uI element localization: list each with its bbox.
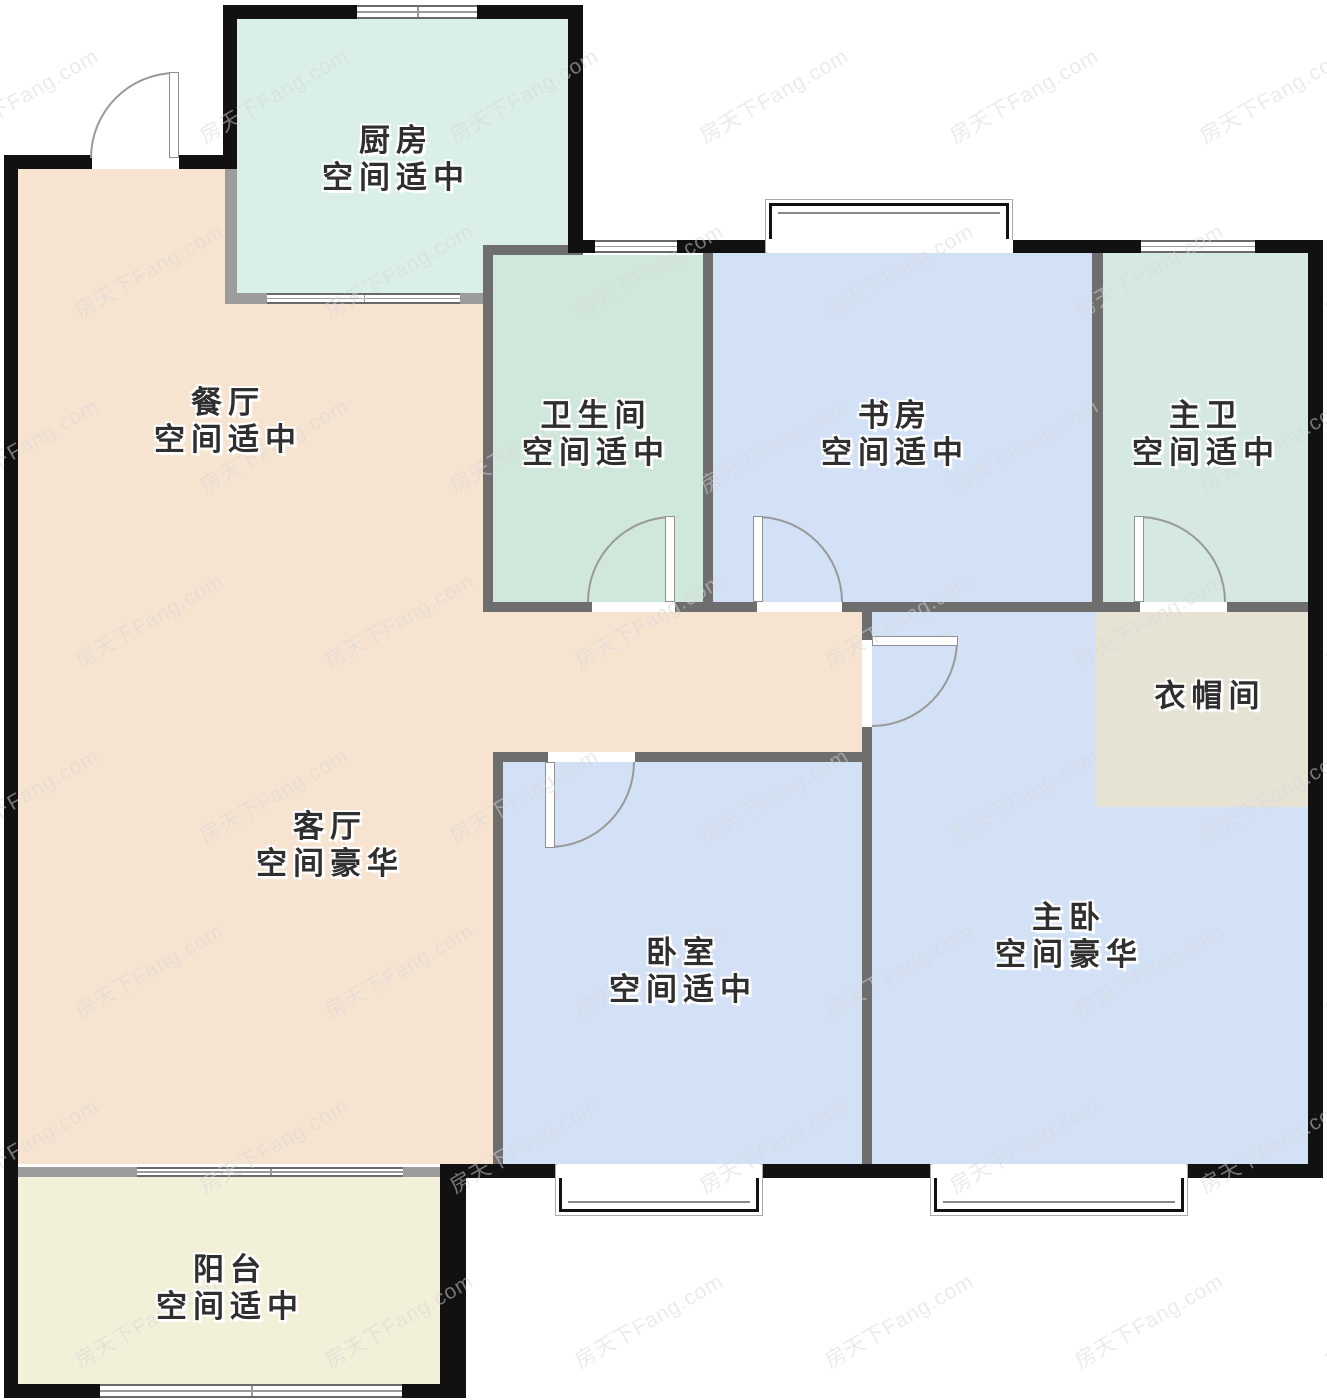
living-note: 空间豪华 [256,845,404,882]
floorplan-canvas: 房天下Fang.com房天下Fang.com房天下Fang.com房天下Fang… [0,0,1327,1400]
bedroom-left-wall [493,752,503,1164]
balcony-right-wall [440,1178,466,1398]
entry-door-arc [90,72,176,158]
master-bedroom-name: 主卧 [995,899,1143,936]
bathroom-name: 卫生间 [522,397,670,434]
living-name: 客厅 [256,808,404,845]
bedroom-bay-window-frame [559,1178,759,1212]
masterbath-top-window-glass-line [1141,246,1255,248]
masterbath-door-opening [1140,602,1227,612]
watermark-text: 房天下Fang.com [1194,40,1327,150]
master-bedroom-note: 空间豪华 [995,936,1143,973]
dining-note: 空间适中 [154,421,302,458]
bathroom-door-opening [592,602,675,612]
watermark-text: 房天下Fang.com [1319,1265,1327,1375]
watermark-text: 房天下Fang.com [694,40,854,150]
bedroom-label: 卧室空间适中 [609,934,757,1008]
bedroom-bay-window-glass-line [568,1201,750,1203]
study-door-opening [757,602,842,612]
bedroom-bay-window-opening [557,1164,761,1178]
master-bay-window-opening [932,1164,1186,1178]
study-name: 书房 [821,397,969,434]
kitchen-left-lower-wall [225,169,237,303]
kitchen-note: 空间适中 [322,159,470,196]
master-bay-window-glass-line [943,1201,1175,1203]
dining-floor [18,169,225,1164]
right-exterior-wall [1308,240,1323,1178]
kitchen-label: 厨房空间适中 [322,122,470,196]
living-label: 客厅空间豪华 [256,808,404,882]
balcony-note: 空间适中 [156,1288,304,1325]
left-exterior-wall [4,155,18,1398]
bedroom-name: 卧室 [609,934,757,971]
kitchen-top-window [357,5,477,19]
study-top-window [595,240,677,253]
master-bath-label: 主卫空间适中 [1132,397,1280,471]
masterbath-door-leaf [1134,516,1144,602]
study-door-leaf [753,516,763,602]
bathroom-door-leaf [665,516,675,602]
dining-floor [483,612,872,752]
bathroom-label: 卫生间空间适中 [522,397,670,471]
study-label: 书房空间适中 [821,397,969,471]
master-bath-note: 空间适中 [1132,434,1280,471]
master-bay-window-frame [934,1178,1184,1212]
kitchen-right-wall [568,5,583,253]
kitchen-bottom-window [267,293,460,304]
study-bay-window-opening [767,240,1013,253]
watermark-text: 房天下Fang.com [0,40,104,150]
study-bay-window-frame [769,203,1009,239]
watermark-text: 房天下Fang.com [569,1265,729,1375]
entry-wall-left [4,155,92,169]
balcony-bottom-window-divider [251,1386,253,1396]
bedroom-door-leaf [545,762,555,848]
entry-door-leaf [169,72,179,158]
balcony-name: 阳台 [156,1251,304,1288]
closet-label: 衣帽间 [1155,678,1266,715]
bathroom-note: 空间适中 [522,434,670,471]
bathroom-left-wall [483,245,493,602]
study-bay-window-glass-line [778,212,1000,214]
study-masterbath-wall [1092,253,1103,612]
master-bedroom-label: 主卧空间豪华 [995,899,1143,973]
master-bath-name: 主卫 [1132,397,1280,434]
study-top-window-glass-line [595,246,677,248]
kitchen-bottom-window-divider [364,295,366,302]
dining-label: 餐厅空间适中 [154,384,302,458]
dining-name: 餐厅 [154,384,302,421]
closet-name: 衣帽间 [1155,678,1266,715]
balcony-label: 阳台空间适中 [156,1251,304,1325]
kitchen-top-window-divider [417,7,419,17]
watermark-text: 房天下Fang.com [1069,1265,1229,1375]
living-balcony-window-divider [270,1169,272,1175]
living-balcony-window [137,1167,403,1177]
watermark-text: 房天下Fang.com [944,40,1104,150]
watermark-text: 房天下Fang.com [819,1265,979,1375]
kitchen-left-upper-wall [223,5,237,169]
bedroom-door-opening [548,752,635,762]
bedroom-note: 空间适中 [609,971,757,1008]
master-bedroom-door-leaf [872,636,958,646]
master-bedroom-door-opening [862,640,872,727]
masterbath-top-window [1141,240,1255,253]
bathroom-study-wall [703,253,713,602]
kitchen-name: 厨房 [322,122,470,159]
study-note: 空间适中 [821,434,969,471]
balcony-bottom-window [100,1384,402,1398]
